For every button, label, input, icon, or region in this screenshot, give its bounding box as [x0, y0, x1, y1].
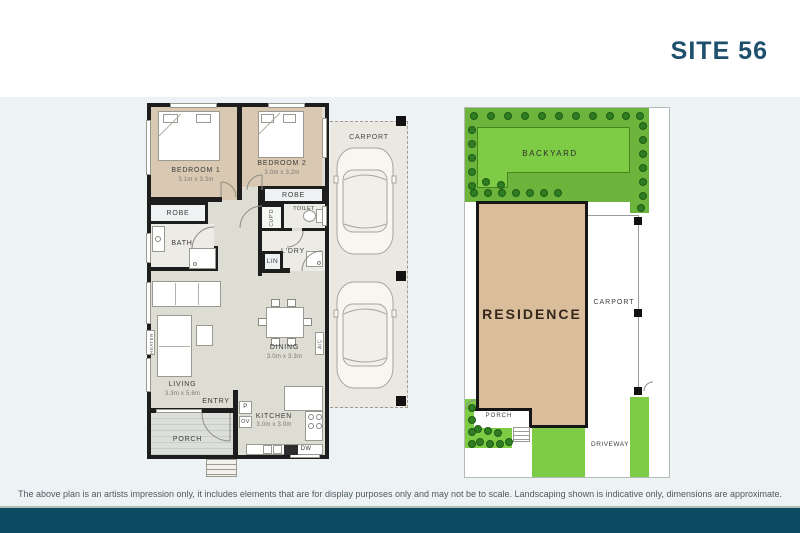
- bed-fold-lines: [158, 113, 280, 137]
- footer-bar: [0, 508, 800, 533]
- door-arcs: [192, 175, 653, 441]
- floorplan-page: SITE 56 ROBE ROBE CUP'D: [0, 0, 800, 533]
- plan-linework-overlay: [0, 0, 800, 533]
- car-icon: [334, 148, 396, 388]
- disclaimer-text: The above plan is an artists impression …: [0, 489, 800, 499]
